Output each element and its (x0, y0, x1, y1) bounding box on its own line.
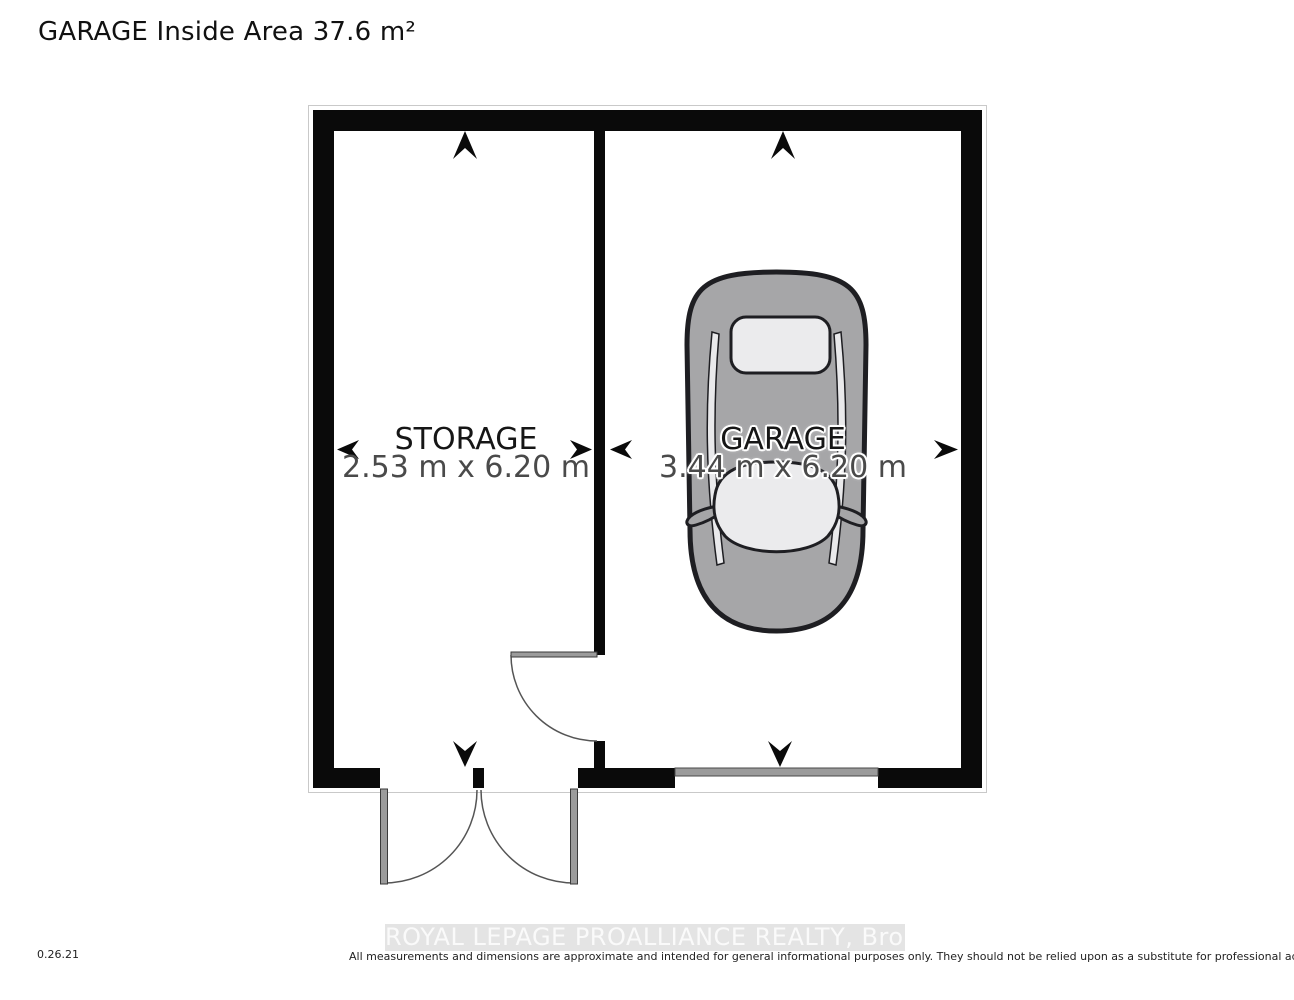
brokerage-watermark: ROYAL LEPAGE PROALLIANCE REALTY, Brokera… (385, 924, 905, 951)
room-dimensions-storage: 2.53 m x 6.20 m (316, 453, 616, 483)
arrow-down-garage-icon (768, 741, 792, 767)
disclaimer-text: All measurements and dimensions are appr… (349, 950, 1294, 963)
garage-overhead-door (675, 768, 878, 776)
arrow-up-garage-icon (771, 131, 795, 159)
floor-plan-page: GARAGE Inside Area 37.6 m² (0, 0, 1294, 1000)
arrow-down-storage-icon (453, 741, 477, 767)
arrow-right-garage-icon (934, 440, 958, 459)
arrow-up-storage-icon (453, 131, 477, 159)
double-entry-door-swing (381, 789, 578, 884)
version-code: 0.26.21 (37, 948, 79, 961)
interior-door-swing (511, 652, 597, 741)
room-dimensions-garage: 3.44 m x 6.20 m (633, 453, 933, 483)
plan-vector-layer (0, 0, 1294, 1000)
